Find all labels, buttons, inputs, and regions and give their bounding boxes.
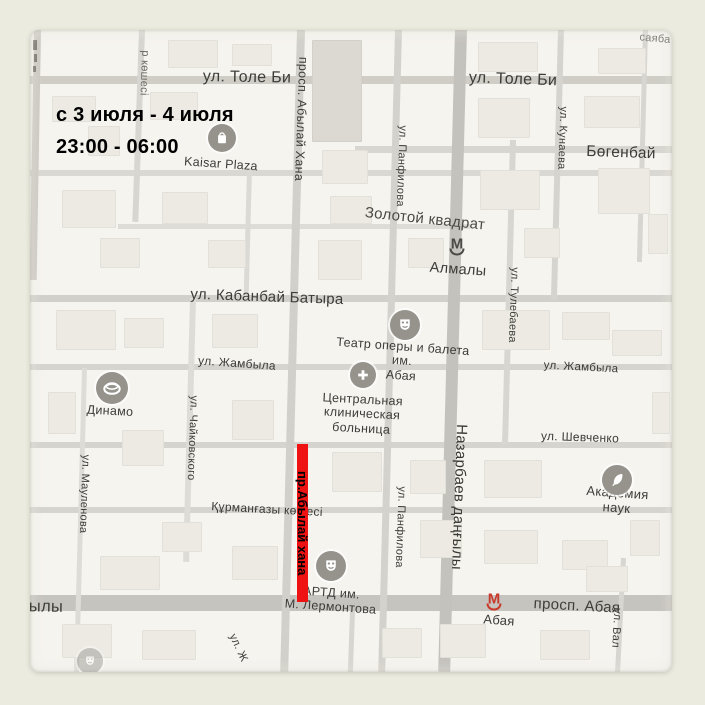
closure-annotation: с 3 июля - 4 июля 23:00 - 06:00 <box>56 99 234 163</box>
building-block <box>212 314 258 348</box>
map-label-hospital: Центральная клиническая больница <box>321 390 404 437</box>
theater-mask-icon[interactable] <box>77 648 103 672</box>
building-block <box>586 566 628 592</box>
metro-station-icon-almaly[interactable]: М <box>450 237 465 256</box>
building-block <box>208 240 246 268</box>
building-block <box>56 310 116 350</box>
stadium-icon <box>101 377 123 399</box>
road-vertical <box>348 611 355 672</box>
map-label-abaya-metro-label: Абая <box>483 612 515 629</box>
theater-mask-icon[interactable] <box>390 310 420 340</box>
closure-hours: 23:00 - 06:00 <box>56 131 234 163</box>
building-block <box>612 330 662 356</box>
building-block <box>312 40 362 142</box>
building-block <box>162 192 208 224</box>
map-label-tulebaeva: ул. Тулебаева <box>505 267 520 343</box>
building-block <box>142 630 196 660</box>
building-block <box>598 168 650 214</box>
building-block <box>524 228 560 258</box>
building-block <box>410 460 446 494</box>
map-label-tole-bi-left: ул. Толе Би <box>203 68 292 88</box>
quill-icon <box>607 470 627 490</box>
closure-dates: с 3 июля - 4 июля <box>56 99 234 131</box>
medical-cross-icon <box>355 367 371 383</box>
building-block <box>232 546 278 580</box>
map-label-ul-val: ул. Вал <box>609 608 624 648</box>
building-block <box>100 238 140 268</box>
building-block <box>124 318 164 348</box>
map-label-zhambyla-left: ул. Жамбыла <box>198 354 277 373</box>
building-block <box>332 452 382 492</box>
metro-arc <box>487 604 502 611</box>
map-label-kabanbai-batyra: ул. Кабанбай Батыра <box>190 286 344 309</box>
building-block <box>168 40 218 68</box>
theater-mask-icon <box>82 653 98 669</box>
theater-mask-icon <box>321 556 341 576</box>
building-block <box>648 214 668 254</box>
building-block <box>478 42 538 72</box>
map-label-sayaba: саяба <box>639 31 671 46</box>
road-closure-highlight[interactable]: пр.Абылай хана <box>297 444 308 602</box>
map-label-tole-bi-right: ул. Толе Би <box>469 69 558 90</box>
building-block <box>382 628 422 658</box>
building-block <box>562 312 610 340</box>
map-label-ul-zh: ул. Ж <box>226 632 250 664</box>
building-block <box>48 392 76 434</box>
map-label-bogenbai: Бөгенбай <box>586 143 656 163</box>
map-label-prosp-abaya: просп. Абая <box>533 595 621 617</box>
building-block <box>484 530 538 564</box>
metro-arc <box>450 249 465 256</box>
road-horizontal <box>30 507 672 513</box>
map-label-zolotoy-kvadrat: Золотой квадрат <box>364 204 486 234</box>
quill-icon[interactable] <box>602 465 632 495</box>
building-block <box>540 630 590 660</box>
building-block <box>318 240 362 280</box>
building-block <box>322 150 368 184</box>
medical-cross-icon[interactable] <box>350 362 376 388</box>
building-block <box>162 522 202 552</box>
road-vertical <box>244 168 252 298</box>
theater-mask-icon[interactable] <box>316 551 346 581</box>
stadium-icon[interactable] <box>96 372 128 404</box>
building-block <box>478 98 530 138</box>
map-label-almaly-metro-label: Алмалы <box>429 260 487 281</box>
map-viewport[interactable]: пр.Абылай хана с 3 июля - 4 июля 23:00 -… <box>30 30 672 672</box>
building-block <box>100 556 160 590</box>
map-edge-artifact <box>33 40 37 50</box>
metro-station-icon-abaya[interactable]: М <box>487 592 502 611</box>
map-label-chaikovskogo: ул. Чайковского <box>184 395 200 480</box>
building-block <box>232 44 272 66</box>
building-block <box>484 460 542 498</box>
building-block <box>630 520 660 556</box>
building-block <box>584 96 640 128</box>
map-label-abylai-khana: просп. Абылай Хана <box>292 57 311 182</box>
theater-mask-icon <box>395 315 415 335</box>
map-label-panfilova-bottom: ул. Панфилова <box>392 486 407 568</box>
map-label-nazarbaev: Назарбаев даңғылы <box>448 424 470 570</box>
building-block <box>598 48 646 74</box>
map-edge-artifact <box>34 54 37 62</box>
map-label-zhambyla-right: ул. Жамбыла <box>543 359 618 376</box>
building-block <box>440 624 486 658</box>
building-block <box>62 190 116 228</box>
road-horizontal <box>30 295 672 302</box>
closure-street-label: пр.Абылай хана <box>295 471 310 575</box>
map-label-panfilova-top: ул. Панфилова <box>393 125 408 207</box>
map-edge-artifact <box>33 66 36 72</box>
building-block <box>232 400 274 440</box>
map-label-yly: ылы <box>30 597 63 617</box>
screenshot-root: { "annotation": { "line1": "с 3 июля - 4… <box>0 0 705 705</box>
map-label-kunaeva: ул. Кунаева <box>555 106 570 170</box>
map-label-r-koshesi: р көшесі <box>137 50 151 96</box>
building-block <box>652 392 670 434</box>
map-label-shevchenko: ул. Шевченко <box>541 430 620 447</box>
building-block <box>122 430 164 466</box>
building-block <box>480 170 540 210</box>
map-label-maulenova: ул. Мауленова <box>76 454 91 533</box>
map-label-dinamo: Динамо <box>86 403 133 420</box>
